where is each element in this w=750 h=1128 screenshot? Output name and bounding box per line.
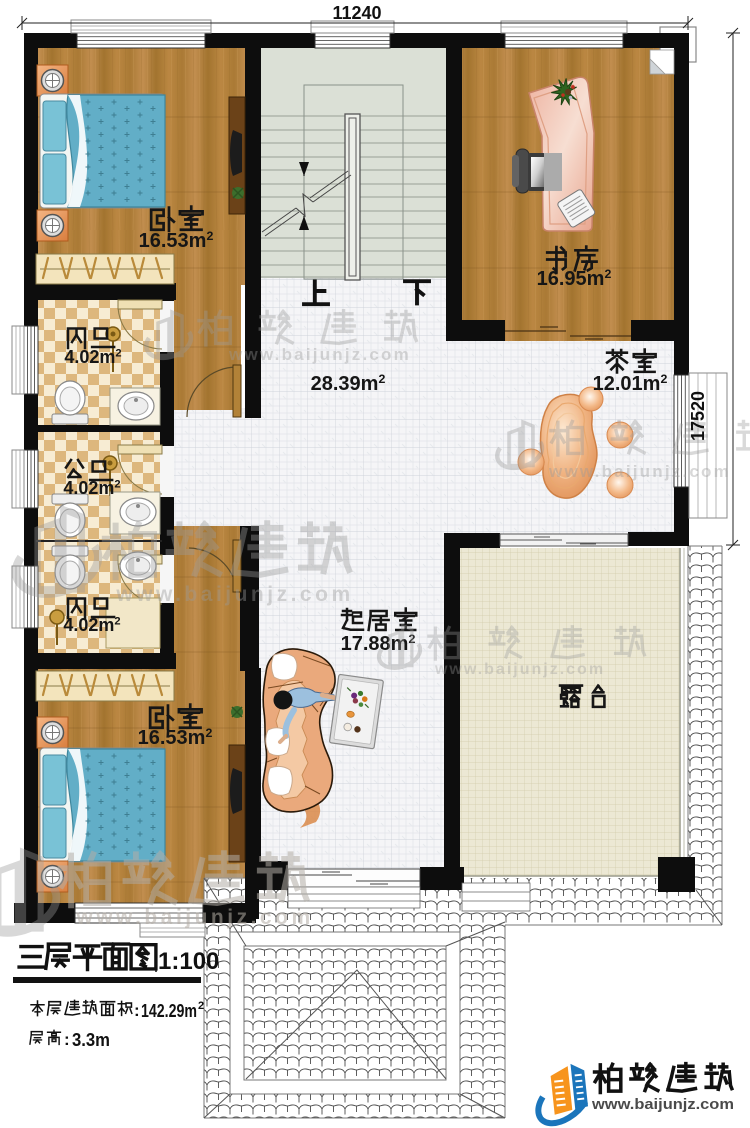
svg-text::: : — [134, 1001, 140, 1020]
svg-text:www.baijunjz.com: www.baijunjz.com — [115, 583, 353, 606]
svg-text:142.29m: 142.29m — [141, 1001, 197, 1021]
svg-text:www.baijunjz.com: www.baijunjz.com — [228, 345, 411, 364]
svg-text:16.53m2: 16.53m2 — [138, 726, 213, 749]
svg-text::: : — [64, 1030, 70, 1049]
svg-text:4.02m2: 4.02m2 — [64, 347, 121, 367]
svg-text:16.95m2: 16.95m2 — [537, 267, 612, 290]
svg-text:2: 2 — [198, 1000, 204, 1012]
svg-text:3.3m: 3.3m — [72, 1030, 110, 1050]
svg-text:www.baijunjz.com: www.baijunjz.com — [75, 906, 313, 929]
svg-text:28.39m2: 28.39m2 — [311, 372, 386, 395]
svg-text:www.baijunjz.com: www.baijunjz.com — [591, 1096, 734, 1113]
svg-text:12.01m2: 12.01m2 — [593, 372, 668, 395]
svg-text:www.baijunjz.com: www.baijunjz.com — [434, 661, 605, 678]
svg-text:16.53m2: 16.53m2 — [139, 229, 214, 252]
svg-text:4.02m2: 4.02m2 — [63, 615, 120, 635]
svg-text:11240: 11240 — [332, 3, 381, 23]
svg-text:1:100: 1:100 — [158, 948, 219, 975]
svg-text:4.02m2: 4.02m2 — [63, 478, 120, 498]
svg-text:www.baijunjz.com: www.baijunjz.com — [548, 462, 731, 481]
svg-text:17520: 17520 — [688, 391, 708, 441]
